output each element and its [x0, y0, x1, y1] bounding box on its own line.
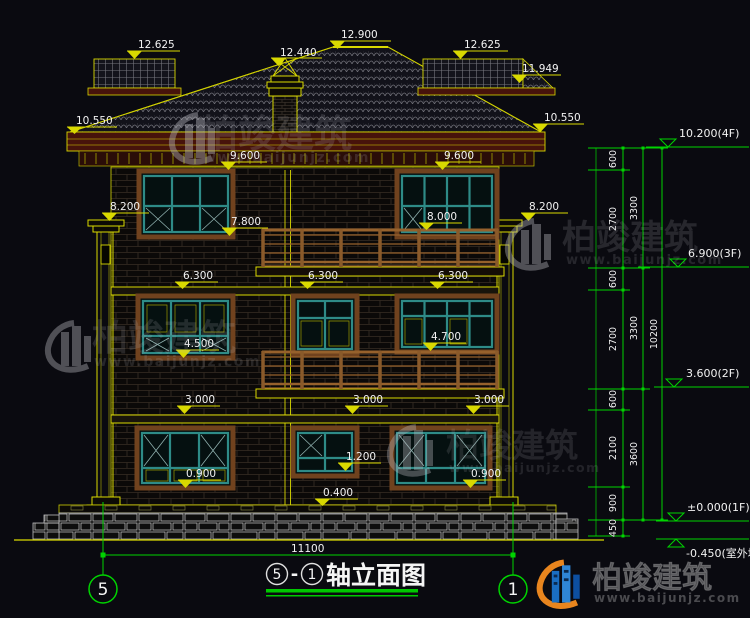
svg-text:3.000: 3.000	[353, 394, 383, 406]
title-num-1: 1	[308, 567, 317, 583]
level-marker-4f: 10.200(4F)	[646, 127, 749, 147]
axis-1-label: 1	[508, 580, 519, 600]
window-2f-right	[397, 296, 497, 352]
title-underline-thick	[266, 589, 418, 593]
mark-8200-right: 8.200	[521, 201, 568, 221]
watermark-logo-icon	[48, 323, 91, 370]
svg-text:12.625: 12.625	[138, 39, 175, 51]
svg-text:7.800: 7.800	[231, 216, 261, 228]
window-1f-left	[137, 428, 233, 488]
level-4f-label: 10.200(4F)	[679, 127, 739, 140]
dim-3300b: 3300	[629, 316, 640, 340]
level-marker-2f: 3.600(2F)	[654, 367, 749, 387]
window-3f-left	[139, 171, 233, 237]
svg-text:12.625: 12.625	[464, 39, 501, 51]
floor-band-2f	[111, 415, 499, 423]
svg-text:4.700: 4.700	[431, 331, 461, 343]
watermark-mid-right: 柏竣建筑 www.baijunjz.com	[508, 218, 723, 268]
svg-text:0.400: 0.400	[323, 487, 353, 499]
svg-text:12.440: 12.440	[280, 47, 317, 59]
svg-text:9.600: 9.600	[444, 150, 474, 162]
svg-text:6.300: 6.300	[438, 270, 468, 282]
svg-text:柏竣建筑: 柏竣建筑	[562, 218, 698, 258]
dim-3300a: 3300	[629, 196, 640, 220]
svg-text:12.900: 12.900	[341, 29, 378, 41]
level-marker-ground: -0.450(室外地坪)	[656, 539, 750, 560]
watermark-bottom-center: 柏竣建筑 www.baijunjz.com	[390, 426, 601, 475]
svg-text:1.200: 1.200	[346, 451, 376, 463]
svg-text:10.550: 10.550	[544, 112, 581, 124]
svg-text:10.550: 10.550	[76, 115, 113, 127]
dim-600a: 600	[608, 150, 619, 168]
drawing-title: 轴立面图	[326, 561, 426, 590]
svg-text:3.000: 3.000	[474, 394, 504, 406]
dim-10200: 10200	[649, 319, 660, 349]
svg-text:6.300: 6.300	[308, 270, 338, 282]
cad-elevation-drawing: 600 2700 600 2700 600 2100 900 450 3300 …	[0, 0, 750, 618]
roof-wing-right	[423, 59, 523, 88]
brand-logo: 柏竣建筑 www.baijunjz.com	[540, 561, 741, 606]
watermark-logo-icon	[508, 221, 551, 268]
svg-text:0.900: 0.900	[186, 468, 216, 480]
window-3f-right	[397, 171, 497, 237]
svg-text:www.baijunjz.com: www.baijunjz.com	[203, 150, 370, 166]
svg-text:6.300: 6.300	[183, 270, 213, 282]
svg-text:8.200: 8.200	[110, 201, 140, 213]
title-block: 5 - 1 轴立面图	[266, 561, 426, 597]
level-ground-label: -0.450(室外地坪)	[686, 546, 750, 560]
dim-2100: 2100	[608, 436, 619, 460]
title-dash: -	[291, 564, 298, 585]
mark-wing-right: 12.625	[453, 39, 508, 59]
level-1f-label: ±0.000(1F)	[687, 501, 750, 514]
dim-450: 450	[608, 519, 619, 537]
dim-3600: 3600	[629, 442, 640, 466]
dim-600c: 600	[608, 390, 619, 408]
svg-text:3.000: 3.000	[185, 394, 215, 406]
title-num-5: 5	[273, 567, 282, 583]
svg-text:8.200: 8.200	[529, 201, 559, 213]
right-dimension-column: 600 2700 600 2700 600 2100 900 450 3300 …	[588, 127, 750, 560]
mark-wing-left: 12.625	[127, 39, 180, 59]
roof-wing-left	[94, 59, 175, 88]
svg-text:www.baijunjz.com: www.baijunjz.com	[566, 253, 723, 268]
dim-600b: 600	[608, 270, 619, 288]
svg-text:www.baijunjz.com: www.baijunjz.com	[449, 460, 601, 475]
mark-eave-right: 10.550	[533, 112, 584, 132]
wall-lamp-left	[101, 245, 110, 264]
watermark-top-center: 柏竣建筑 www.baijunjz.com	[172, 112, 370, 166]
svg-text:www.baijunjz.com: www.baijunjz.com	[94, 354, 261, 370]
axis-5-label: 5	[98, 580, 109, 600]
door-2f-center	[293, 296, 357, 354]
svg-text:11.949: 11.949	[522, 63, 559, 75]
level-marker-1f: ±0.000(1F)	[656, 501, 750, 521]
title-underline-thin	[266, 595, 418, 597]
svg-text:柏竣建筑: 柏竣建筑	[92, 318, 236, 359]
drawing-canvas: 600 2700 600 2700 600 2100 900 450 3300 …	[0, 0, 750, 618]
dim-900: 900	[608, 494, 619, 512]
svg-text:8.000: 8.000	[427, 211, 457, 223]
watermark-mid-left: 柏竣建筑 www.baijunjz.com	[48, 318, 261, 370]
dim-2700b: 2700	[608, 327, 619, 351]
total-width-label: 11100	[291, 543, 324, 555]
level-2f-label: 3.600(2F)	[686, 367, 739, 380]
brand-logo-icon	[540, 563, 580, 606]
brand-logo-url: www.baijunjz.com	[594, 591, 741, 605]
